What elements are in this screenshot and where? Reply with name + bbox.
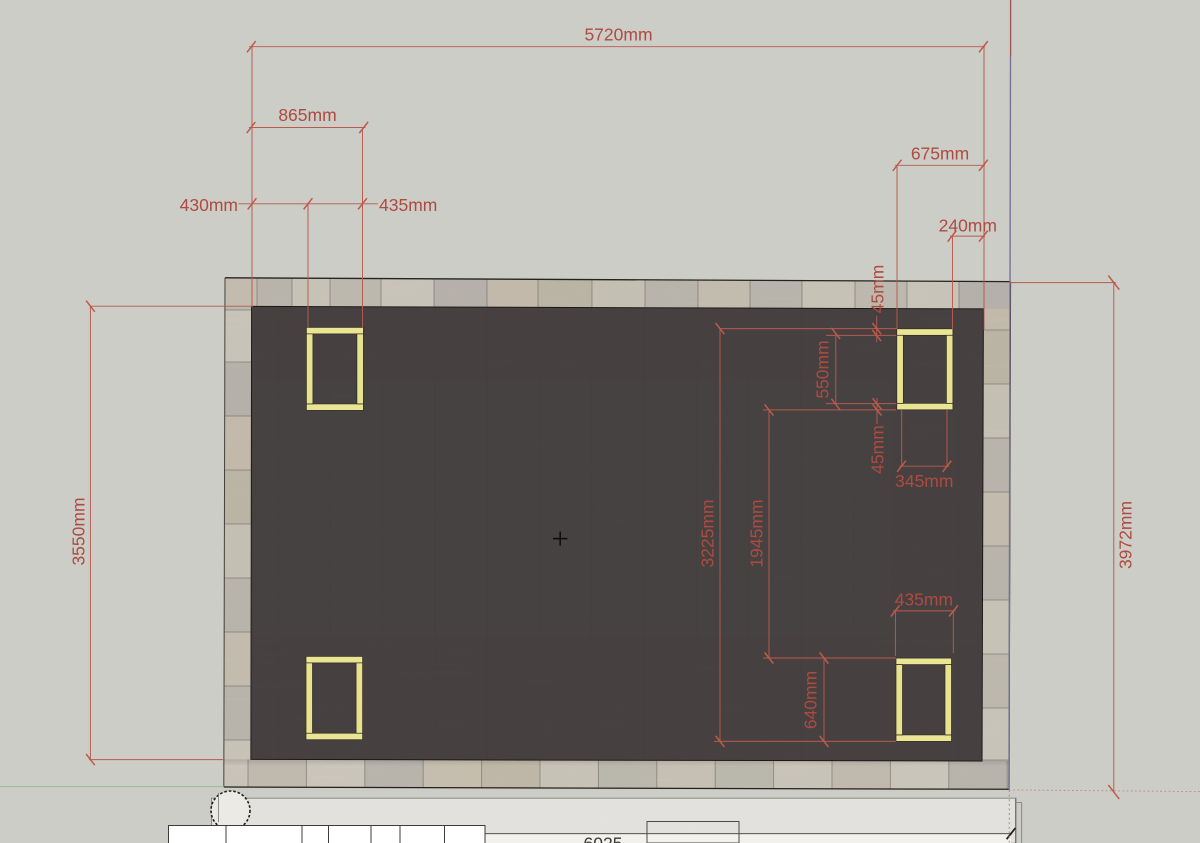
svg-text:345mm: 345mm — [895, 471, 953, 491]
svg-text:45mm: 45mm — [867, 425, 887, 474]
svg-text:45mm: 45mm — [867, 265, 887, 314]
svg-text:5720mm: 5720mm — [584, 25, 652, 45]
svg-text:3972mm: 3972mm — [1115, 501, 1135, 569]
svg-text:3550mm: 3550mm — [68, 497, 88, 565]
svg-text:435mm: 435mm — [379, 195, 437, 215]
svg-text:430mm: 430mm — [180, 195, 238, 215]
svg-text:865mm: 865mm — [278, 105, 336, 125]
svg-text:240mm: 240mm — [939, 215, 997, 235]
svg-text:1945mm: 1945mm — [747, 499, 767, 567]
svg-text:6025: 6025 — [584, 834, 623, 843]
svg-text:3225mm: 3225mm — [698, 499, 718, 567]
svg-text:550mm: 550mm — [812, 340, 832, 398]
svg-text:675mm: 675mm — [911, 143, 969, 163]
svg-text:640mm: 640mm — [801, 671, 821, 729]
svg-text:435mm: 435mm — [895, 589, 953, 609]
